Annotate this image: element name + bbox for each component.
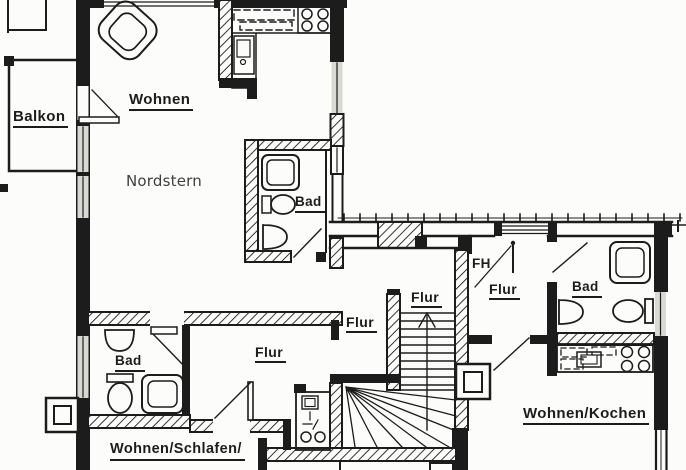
bathroom-lower [105, 330, 183, 413]
kitchen-top [219, 0, 332, 99]
floor-plan: Balkon Wohnen Nordstern Bad Bad Bad FH F… [0, 0, 686, 470]
toilet-symbol [613, 299, 653, 323]
chimney-symbol [456, 364, 490, 399]
east-exterior-wall [654, 222, 668, 470]
toilet-symbol [107, 374, 133, 413]
upper-cabinets-dashed [561, 347, 616, 369]
flur-bad-wall [547, 236, 557, 376]
kitchenette [294, 384, 330, 450]
shower-symbol [610, 242, 650, 283]
room-label-wohnen: Wohnen [129, 92, 193, 111]
room-label-flur-wing: Flur [489, 282, 520, 300]
bathroom-right [553, 242, 654, 345]
room-label-bad-top: Bad [295, 195, 325, 213]
burner-symbol [301, 432, 311, 442]
burner-symbol [315, 432, 325, 442]
room-label-balkon: Balkon [13, 109, 68, 128]
label-fh: FH [472, 257, 491, 271]
room-label-wohnen-schlafen: Wohnen/Schlafen/ [110, 442, 245, 461]
stove-symbol [622, 347, 650, 372]
stair-up-arrow [419, 313, 435, 430]
shower-symbol [142, 375, 183, 413]
winder-stairs [346, 387, 456, 447]
room-label-flur-strip: Flur [346, 315, 377, 333]
room-label-flur-lower: Flur [255, 345, 286, 363]
staircase-symbol [258, 250, 490, 470]
door-swing [215, 382, 253, 420]
armchair-symbol [93, 0, 162, 65]
room-label-flur-landing: Flur [411, 290, 442, 308]
lower-left-unit [88, 238, 343, 450]
washbasin-symbol [105, 330, 134, 351]
stair-treads [400, 313, 456, 390]
window-symbol [502, 226, 548, 234]
kitchen-sink-symbol [577, 352, 601, 367]
stove-symbol [298, 6, 332, 33]
room-label-bad-lower: Bad [115, 354, 145, 372]
washbasin-symbol [559, 300, 583, 324]
floor-plan-drawing [0, 0, 686, 470]
kitchen-sink-symbol [234, 36, 254, 74]
door-swing [553, 243, 587, 272]
shower-symbol [262, 155, 299, 190]
room-label-nordstern: Nordstern [126, 174, 202, 189]
exterior-walls [0, 0, 347, 470]
washbasin-symbol [263, 225, 287, 249]
toilet-symbol [262, 195, 295, 214]
room-label-wohnen-kochen: Wohnen/Kochen [523, 406, 649, 425]
chimney-symbol [46, 398, 78, 432]
upper-cabinets-dashed [234, 10, 294, 30]
room-label-bad-right: Bad [572, 280, 602, 298]
door-swing [494, 338, 529, 370]
